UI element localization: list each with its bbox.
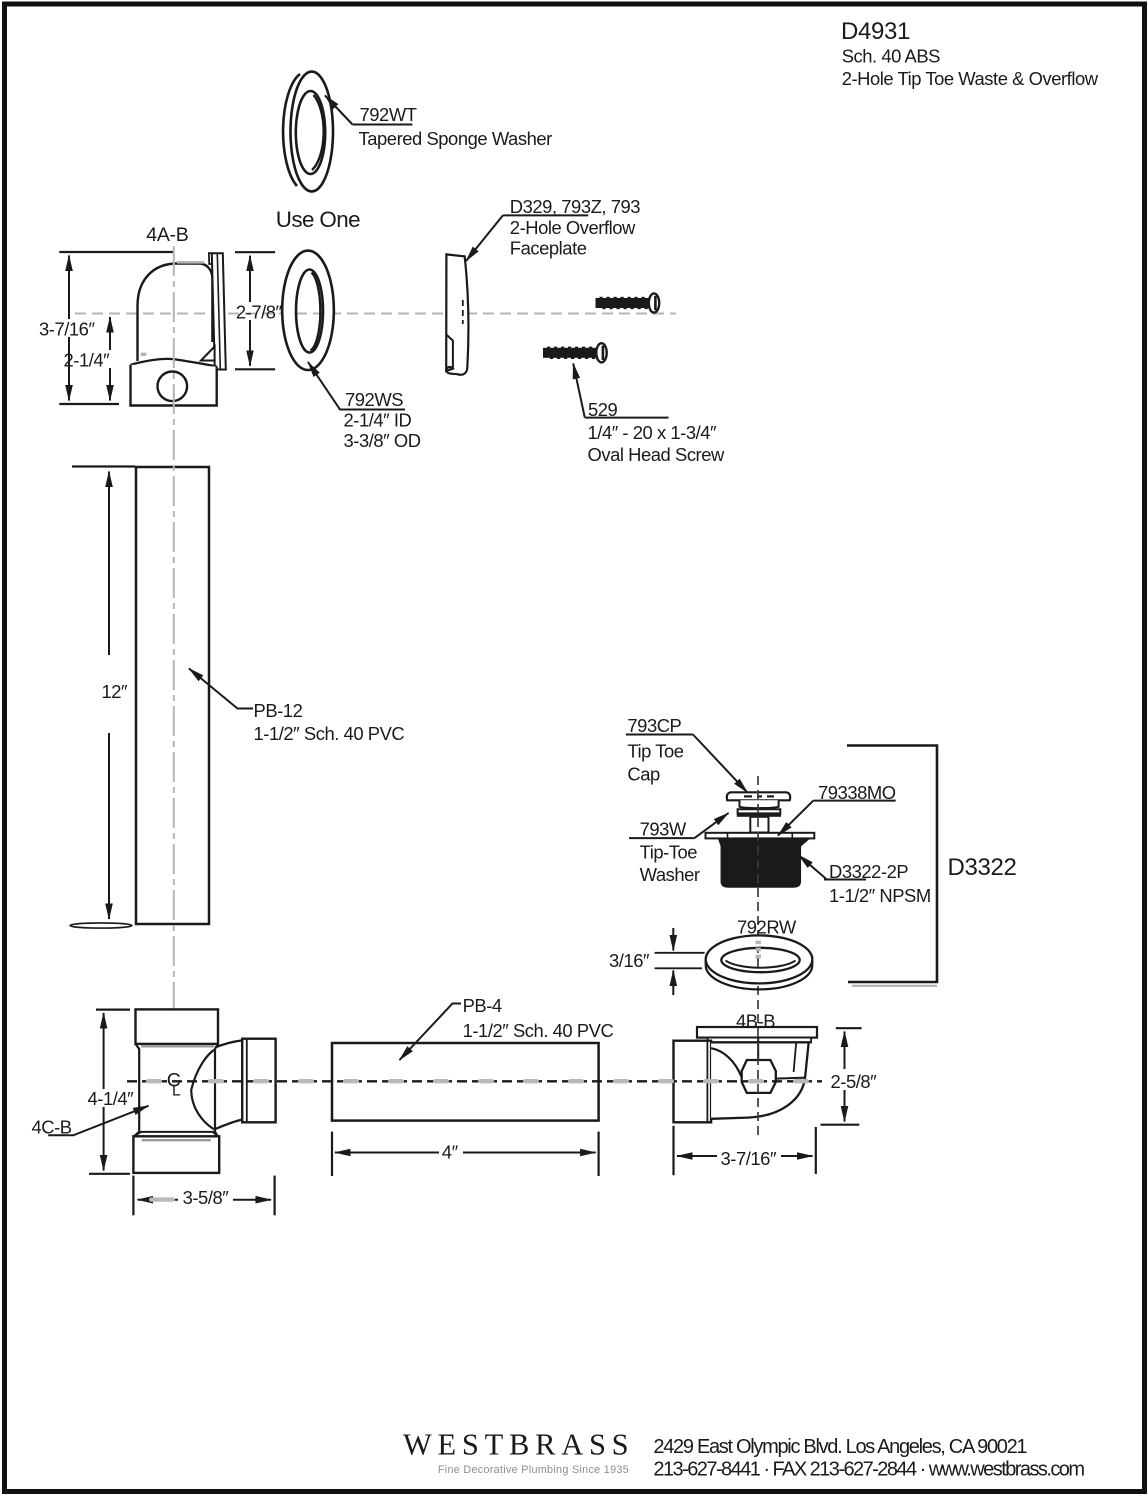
- svg-text:Tapered Sponge Washer: Tapered Sponge Washer: [359, 128, 553, 149]
- svg-text:Use One: Use One: [276, 207, 360, 232]
- svg-text:Cap: Cap: [627, 764, 660, 785]
- svg-text:79338MO: 79338MO: [818, 782, 896, 803]
- svg-text:4C-B: 4C-B: [32, 1116, 72, 1137]
- svg-text:793W: 793W: [640, 819, 687, 840]
- svg-text:4A-B: 4A-B: [146, 224, 188, 246]
- svg-text:2429 East Olympic Blvd. Los An: 2429 East Olympic Blvd. Los Angeles, CA …: [653, 1436, 1027, 1458]
- svg-text:Sch. 40 ABS: Sch. 40 ABS: [842, 45, 940, 66]
- svg-text:PB-4: PB-4: [463, 995, 502, 1016]
- svg-text:2-1/4″: 2-1/4″: [64, 349, 111, 370]
- svg-text:Tip-Toe: Tip-Toe: [640, 842, 698, 863]
- svg-text:3-7/16″: 3-7/16″: [39, 319, 95, 340]
- svg-text:529: 529: [588, 399, 618, 420]
- svg-text:2-5/8″: 2-5/8″: [831, 1071, 878, 1092]
- svg-text:4″: 4″: [442, 1141, 459, 1162]
- svg-text:4-1/4″: 4-1/4″: [88, 1088, 135, 1109]
- svg-text:1-1/2″ Sch. 40 PVC: 1-1/2″ Sch. 40 PVC: [463, 1020, 614, 1041]
- svg-text:792WS: 792WS: [345, 389, 403, 410]
- svg-text:Washer: Washer: [640, 864, 700, 885]
- svg-text:2-7/8″: 2-7/8″: [236, 301, 283, 322]
- svg-text:3-3/8″ OD: 3-3/8″ OD: [344, 430, 421, 451]
- svg-text:1-1/2″ NPSM: 1-1/2″ NPSM: [829, 885, 931, 906]
- svg-text:2-1/4″ ID: 2-1/4″ ID: [344, 409, 412, 430]
- svg-text:1/4″ - 20 x 1-3/4″: 1/4″ - 20 x 1-3/4″: [588, 422, 718, 443]
- svg-text:793CP: 793CP: [627, 715, 681, 736]
- svg-text:792WT: 792WT: [360, 104, 417, 125]
- svg-text:213-627-8441 · FAX 213-627-284: 213-627-8441 · FAX 213-627-2844 · www.we…: [653, 1459, 1084, 1481]
- svg-text:D4931: D4931: [841, 18, 910, 45]
- svg-text:1-1/2″ Sch. 40 PVC: 1-1/2″ Sch. 40 PVC: [254, 723, 405, 744]
- svg-text:12″: 12″: [102, 681, 129, 702]
- svg-text:D3322-2P: D3322-2P: [829, 861, 908, 882]
- svg-text:Tip Toe: Tip Toe: [627, 741, 683, 762]
- svg-text:D329, 793Z, 793: D329, 793Z, 793: [510, 196, 640, 217]
- svg-text:Faceplate: Faceplate: [510, 238, 587, 259]
- svg-text:3/16″: 3/16″: [609, 950, 650, 971]
- svg-text:Oval Head Screw: Oval Head Screw: [588, 444, 726, 465]
- svg-text:WESTBRASS: WESTBRASS: [403, 1428, 634, 1462]
- svg-text:Fine Decorative Plumbing Since: Fine Decorative Plumbing Since 1935: [438, 1464, 629, 1476]
- svg-text:3-7/16″: 3-7/16″: [721, 1148, 777, 1169]
- svg-text:2-Hole Tip Toe Waste & Overflo: 2-Hole Tip Toe Waste & Overflow: [842, 68, 1099, 89]
- svg-text:4B-B: 4B-B: [736, 1011, 775, 1032]
- svg-text:L: L: [172, 1083, 181, 1100]
- svg-text:3-5/8″: 3-5/8″: [183, 1187, 230, 1208]
- svg-text:792RW: 792RW: [737, 916, 797, 937]
- svg-text:2-Hole Overflow: 2-Hole Overflow: [510, 217, 636, 238]
- svg-text:PB-12: PB-12: [254, 700, 303, 721]
- svg-text:D3322: D3322: [948, 854, 1017, 881]
